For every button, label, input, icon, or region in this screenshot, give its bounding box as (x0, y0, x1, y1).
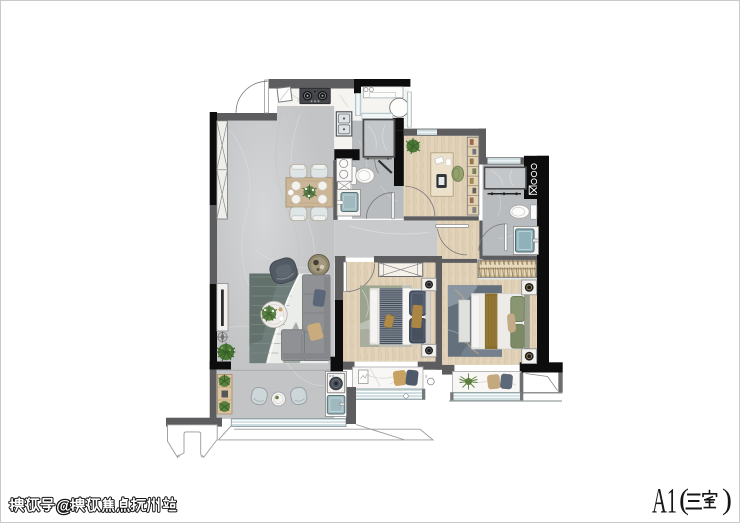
svg-text:(: ( (679, 483, 689, 516)
svg-text:A1: A1 (652, 481, 677, 521)
svg-text:): ) (722, 483, 732, 516)
svg-text:@: @ (56, 498, 72, 516)
